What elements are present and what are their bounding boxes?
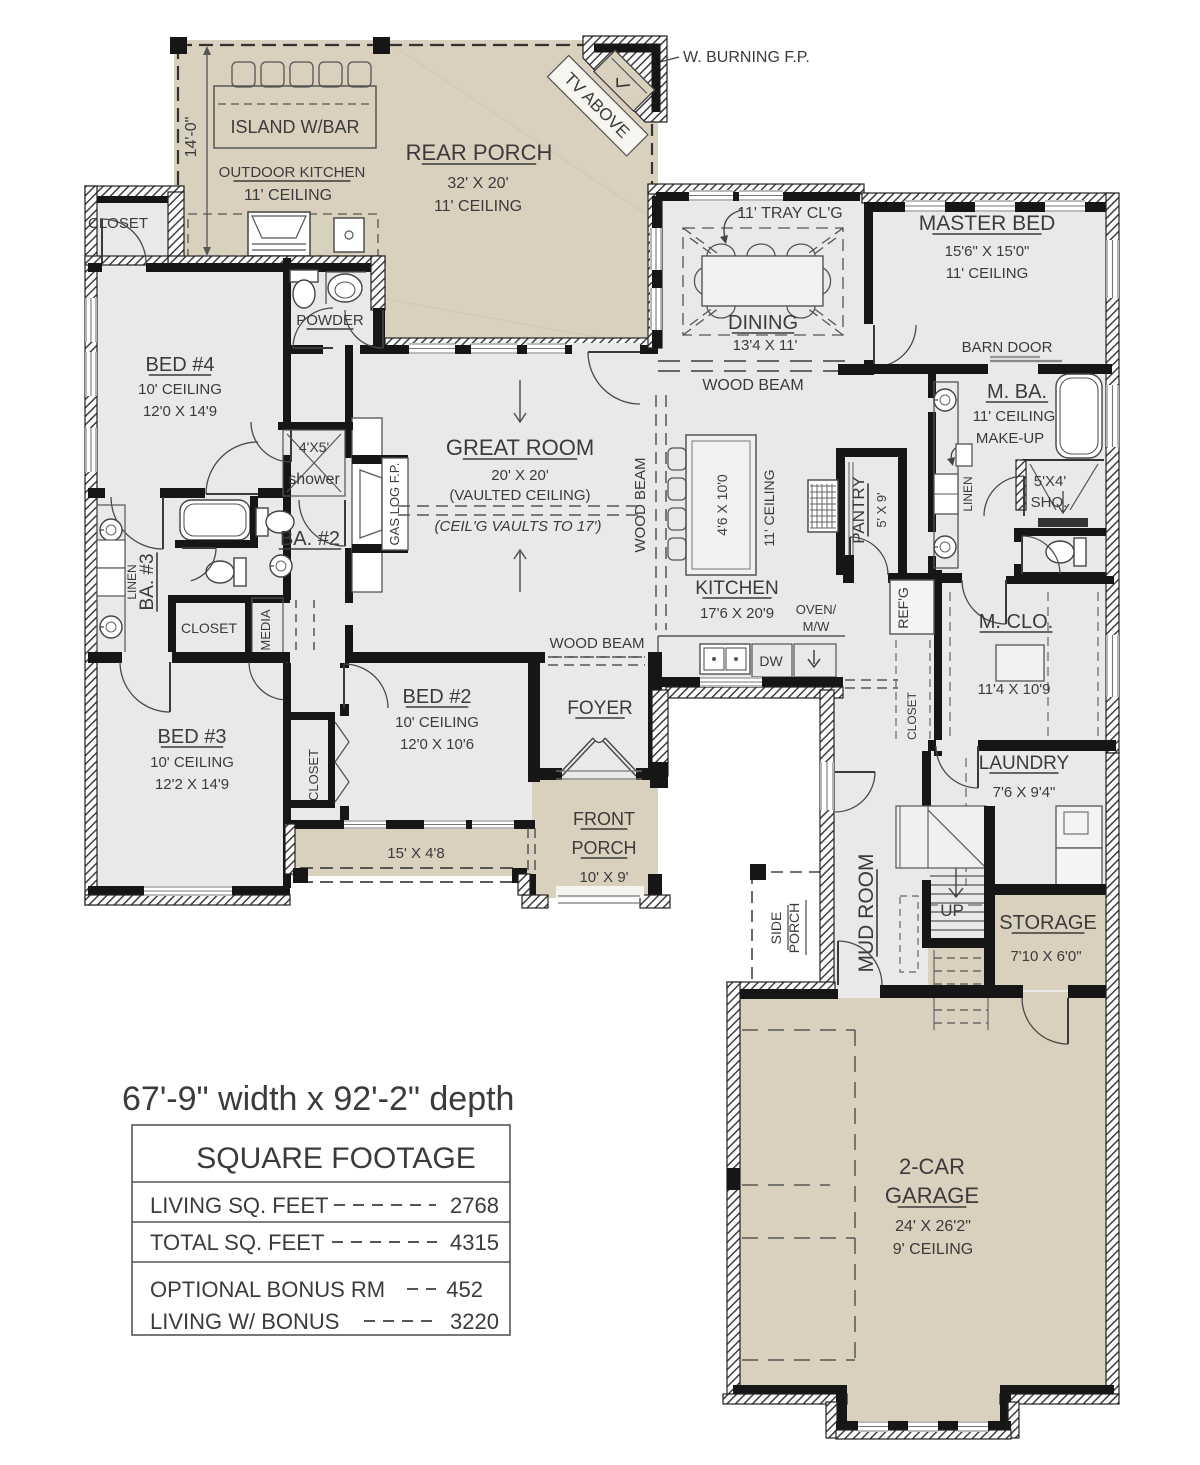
svg-text:DW: DW [759,653,783,669]
svg-text:2-CAR: 2-CAR [899,1154,965,1179]
svg-text:LINEN: LINEN [961,476,975,511]
svg-text:GARAGE: GARAGE [885,1183,979,1208]
svg-text:5'X4': 5'X4' [1034,473,1067,490]
svg-text:BED #3: BED #3 [158,726,227,748]
svg-text:WOOD BEAM: WOOD BEAM [549,635,644,652]
svg-text:GREAT ROOM: GREAT ROOM [446,435,594,460]
svg-text:(VAULTED CEILING): (VAULTED CEILING) [449,487,590,504]
svg-text:15'6" X 15'0": 15'6" X 15'0" [945,243,1030,260]
svg-text:10' CEILING: 10' CEILING [395,714,479,731]
svg-text:14'-0": 14'-0" [183,117,200,158]
svg-text:11' CEILING: 11' CEILING [761,469,777,546]
svg-text:LAUNDRY: LAUNDRY [979,753,1070,774]
svg-text:11'4 X 10'9: 11'4 X 10'9 [977,681,1050,698]
svg-text:OUTDOOR KITCHEN: OUTDOOR KITCHEN [219,164,366,181]
svg-text:13'4 X 11': 13'4 X 11' [733,337,798,354]
svg-text:12'0 X 14'9: 12'0 X 14'9 [143,403,217,420]
svg-text:BED #2: BED #2 [403,686,472,708]
svg-text:ISLAND W/BAR: ISLAND W/BAR [230,117,359,137]
svg-text:STORAGE: STORAGE [999,912,1096,934]
svg-text:POWDER: POWDER [296,312,364,329]
svg-text:3220: 3220 [450,1309,499,1334]
svg-text:GAS LOG F.P.: GAS LOG F.P. [387,463,402,546]
svg-text:REF'G: REF'G [895,587,911,629]
svg-text:M. BA.: M. BA. [987,381,1047,403]
svg-text:CLOSET: CLOSET [181,620,237,636]
svg-text:10' X 9': 10' X 9' [579,869,628,886]
svg-text:SIDE: SIDE [768,912,784,945]
svg-text:BA. #3: BA. #3 [137,553,158,610]
svg-text:CLOSET: CLOSET [88,215,148,232]
svg-text:LIVING W/ BONUS: LIVING W/ BONUS [150,1309,339,1334]
svg-text:4'X5': 4'X5' [299,439,329,455]
svg-text:LIVING SQ. FEET: LIVING SQ. FEET [150,1193,328,1218]
svg-text:12'2 X 14'9: 12'2 X 14'9 [155,776,229,793]
svg-text:24' X 26'2": 24' X 26'2" [895,1218,971,1235]
svg-text:DINING: DINING [728,312,798,334]
svg-text:4315: 4315 [450,1230,499,1255]
svg-text:10' CEILING: 10' CEILING [150,754,234,771]
svg-text:11' CEILING: 11' CEILING [946,265,1029,282]
svg-text:BED #4: BED #4 [146,354,215,376]
svg-text:11' CEILING: 11' CEILING [434,198,522,215]
svg-text:452: 452 [446,1277,483,1302]
svg-text:2768: 2768 [450,1193,499,1218]
svg-text:WOOD BEAM: WOOD BEAM [632,457,649,552]
svg-text:W. BURNING F.P.: W. BURNING F.P. [683,49,810,66]
svg-text:UP: UP [940,901,964,920]
svg-text:5' X 9': 5' X 9' [874,492,889,527]
svg-text:REAR PORCH: REAR PORCH [406,140,553,165]
svg-text:FRONT: FRONT [573,809,635,829]
svg-text:M/W: M/W [803,619,830,634]
svg-text:7'10 X 6'0": 7'10 X 6'0" [1010,948,1081,965]
svg-text:shower: shower [288,471,340,488]
svg-text:OVEN/: OVEN/ [796,602,837,617]
svg-text:(CEIL'G VAULTS TO 17'): (CEIL'G VAULTS TO 17') [435,518,602,535]
svg-text:MUD ROOM: MUD ROOM [855,854,878,973]
svg-text:67'-9" width x 92'-2" depth: 67'-9" width x 92'-2" depth [122,1080,514,1118]
svg-text:12'0 X 10'6: 12'0 X 10'6 [400,736,474,753]
svg-text:PORCH: PORCH [571,838,636,858]
svg-text:CLOSET: CLOSET [306,749,321,801]
svg-text:17'6 X 20'9: 17'6 X 20'9 [700,605,774,622]
svg-text:32' X 20': 32' X 20' [447,175,508,192]
svg-text:11' CEILING: 11' CEILING [973,408,1056,425]
svg-text:MEDIA: MEDIA [258,609,273,651]
svg-text:11' TRAY CL'G: 11' TRAY CL'G [737,205,842,222]
svg-text:M. CLO.: M. CLO. [979,611,1053,633]
svg-text:OPTIONAL BONUS RM: OPTIONAL BONUS RM [150,1277,385,1302]
svg-text:BA. #2: BA. #2 [280,528,340,550]
svg-text:CLOSET: CLOSET [905,691,919,740]
svg-text:MASTER BED: MASTER BED [919,212,1056,235]
svg-text:SHO.: SHO. [1031,494,1068,511]
svg-text:7'6 X 9'4": 7'6 X 9'4" [993,784,1056,801]
svg-text:9' CEILING: 9' CEILING [893,1241,973,1258]
svg-text:SQUARE FOOTAGE: SQUARE FOOTAGE [196,1142,475,1175]
svg-text:TOTAL SQ. FEET: TOTAL SQ. FEET [150,1230,324,1255]
svg-text:WOOD BEAM: WOOD BEAM [702,377,803,394]
svg-text:KITCHEN: KITCHEN [695,578,778,599]
svg-text:FOYER: FOYER [567,698,632,719]
svg-text:BARN DOOR: BARN DOOR [962,339,1053,356]
svg-text:MAKE-UP: MAKE-UP [976,430,1044,447]
svg-text:10' CEILING: 10' CEILING [138,381,222,398]
svg-text:PANTRY: PANTRY [849,476,868,543]
svg-text:4'6 X 10'0: 4'6 X 10'0 [714,474,730,536]
svg-text:20' X 20': 20' X 20' [491,467,549,484]
svg-text:15' X 4'8: 15' X 4'8 [387,845,444,862]
svg-text:11' CEILING: 11' CEILING [244,187,332,204]
